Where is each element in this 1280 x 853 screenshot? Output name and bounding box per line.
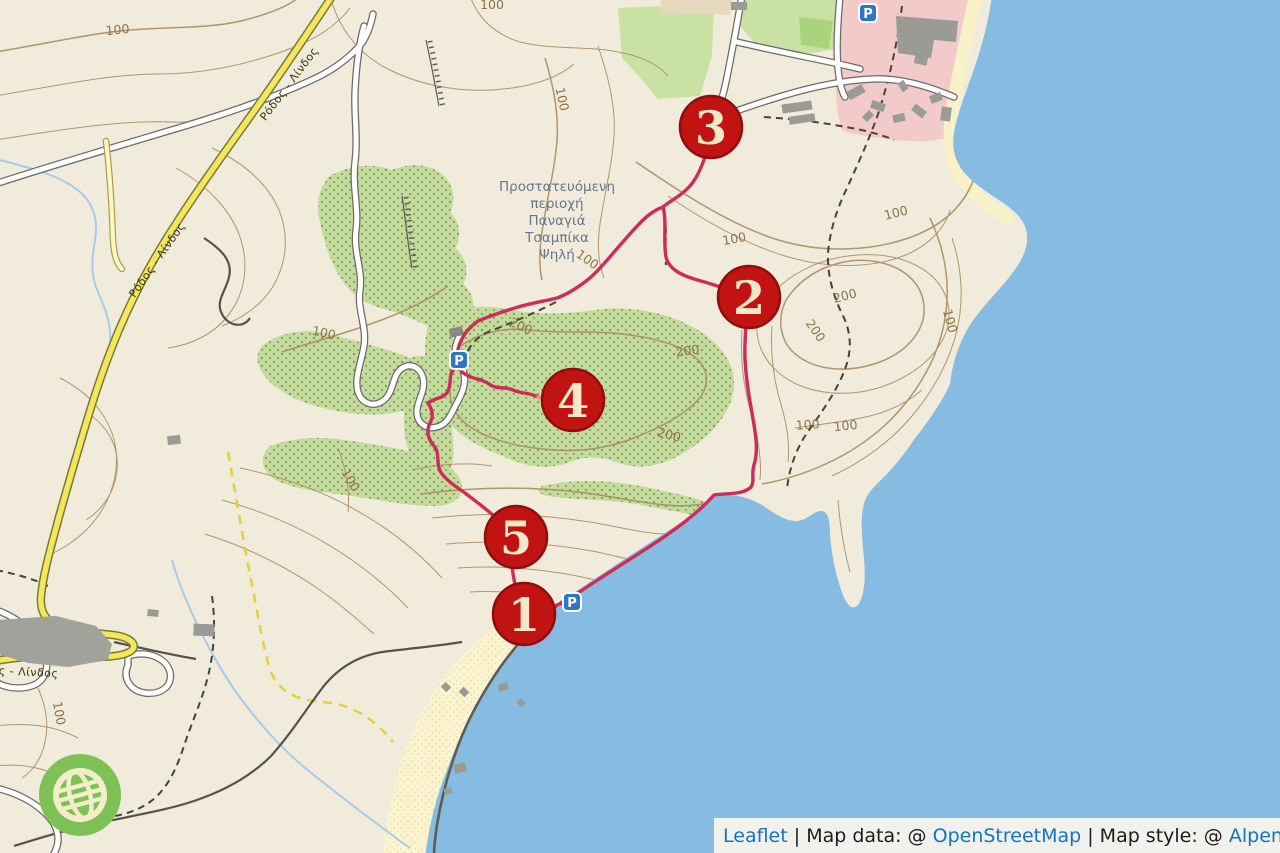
route-marker-5[interactable]: 5 (485, 506, 547, 568)
contour-label: 100 (833, 417, 858, 434)
svg-text:2: 2 (733, 271, 765, 325)
svg-text:4: 4 (557, 374, 589, 428)
alpenkarte-link[interactable]: Alpenkarte (1229, 825, 1280, 847)
building (167, 435, 181, 445)
route-marker-1[interactable]: 1 (493, 583, 555, 645)
route-marker-3[interactable]: 3 (680, 96, 742, 158)
attribution-bar: Leaflet | Map data: @ OpenStreetMap | Ma… (714, 818, 1280, 853)
attribution-separator: | (1081, 825, 1099, 847)
leaflet-map[interactable]: Προστατευόμενη περιοχή Παναγιά Τσαμπίκα … (0, 0, 1280, 853)
protected-area-line: Τσαμπίκα (524, 230, 589, 246)
svg-text:5: 5 (500, 511, 532, 565)
parking-icon: P (859, 4, 877, 22)
map-data-prefix: Map data: @ (806, 825, 932, 847)
route-marker-4[interactable]: 4 (542, 369, 604, 431)
field-tan (660, 0, 732, 15)
svg-text:1: 1 (508, 588, 540, 642)
building (147, 609, 159, 617)
route-marker-2[interactable]: 2 (718, 266, 780, 328)
building (940, 106, 952, 121)
building (731, 2, 747, 10)
building (193, 624, 214, 637)
attribution-separator: | (788, 825, 806, 847)
leaflet-link[interactable]: Leaflet (723, 825, 788, 847)
svg-text:3: 3 (695, 101, 727, 155)
field-bright-green (799, 17, 833, 49)
svg-text:P: P (863, 7, 873, 22)
parking-icon: P (563, 593, 581, 611)
map-style-prefix: Map style: @ (1100, 825, 1229, 847)
contour-label: 100 (480, 0, 504, 12)
openstreetmap-link[interactable]: OpenStreetMap (933, 825, 1082, 847)
protected-area-line: Ψηλή (539, 247, 575, 263)
protected-area-line: Παναγιά (529, 213, 586, 229)
parking-icon: P (450, 351, 468, 369)
contour-label: 100 (105, 21, 130, 38)
protected-area-line: Προστατευόμενη (499, 179, 615, 195)
svg-text:P: P (454, 354, 464, 369)
protected-area-line: περιοχή (530, 196, 583, 212)
map-canvas: Προστατευόμενη περιοχή Παναγιά Τσαμπίκα … (0, 0, 1280, 853)
svg-text:P: P (567, 596, 577, 611)
contour-label: 100 (795, 416, 820, 433)
